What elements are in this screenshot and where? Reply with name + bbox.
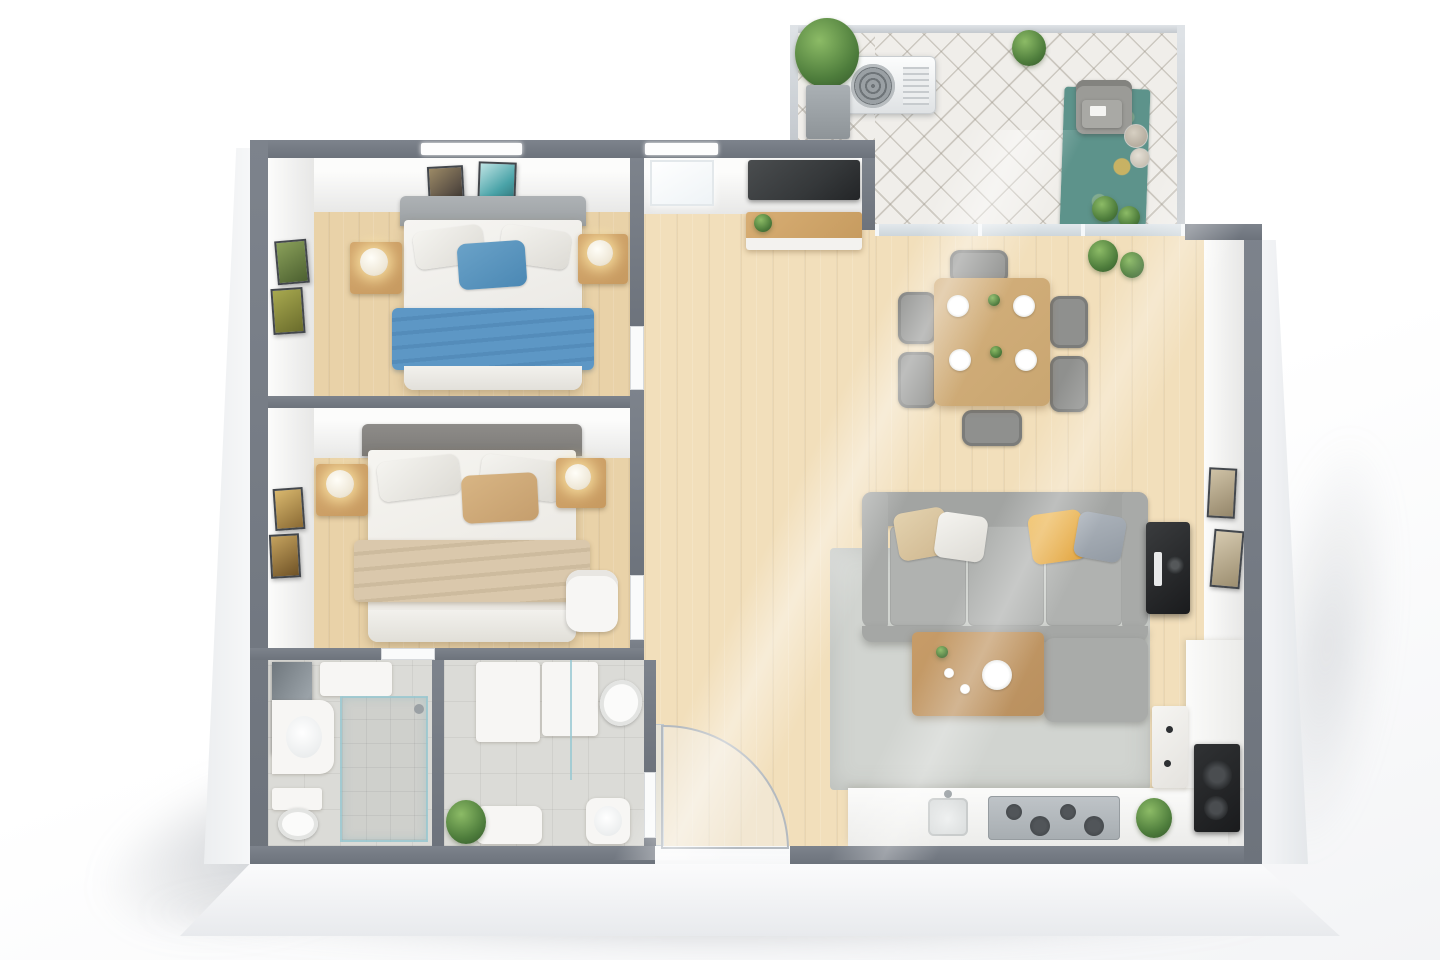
bedroom1-art-side-2 <box>270 287 305 335</box>
bath2-plant <box>446 800 486 844</box>
book-on-table <box>1090 106 1106 116</box>
ac-vents <box>903 67 929 105</box>
kitchen-knob-cabinet <box>1152 706 1188 788</box>
bath2-glass-screen <box>570 660 572 780</box>
sliding-door-mullion-1 <box>875 224 879 236</box>
bed1-foot-fold <box>404 366 582 390</box>
cooktop <box>988 796 1120 840</box>
balcony-plant-1 <box>1092 196 1118 222</box>
balcony-sliding-door <box>875 224 1185 236</box>
bed2-foot-fold <box>368 610 576 642</box>
bath1-shower <box>340 696 428 842</box>
bed1-throw-blanket <box>392 308 594 370</box>
burner-2 <box>1030 816 1050 836</box>
ac-fan-grille <box>851 64 895 108</box>
tv-screen <box>748 160 860 200</box>
wall-bedroom2-baths-a <box>250 648 381 660</box>
black-sink-unit <box>1194 744 1240 832</box>
burner-3 <box>1060 804 1076 820</box>
wall-between-bathrooms <box>432 660 444 846</box>
bath2-basin-bowl <box>594 806 622 836</box>
tv-sideboard-plant <box>754 214 772 232</box>
living-plant-1 <box>1088 240 1118 272</box>
balcony-top-plant <box>1012 30 1046 66</box>
wall-stub-balcony-right <box>1185 224 1262 240</box>
burner-1 <box>1006 804 1022 820</box>
sofa-pillow-white <box>933 511 989 564</box>
living-art-2 <box>1210 529 1245 589</box>
tall-plant-planter <box>806 85 850 139</box>
wall-bottom-right <box>790 846 1262 864</box>
coffee-table-plate <box>982 660 1012 690</box>
wall-bedrooms-hall-a <box>630 158 644 326</box>
sofa <box>862 492 1148 642</box>
sofa-pillow-gray <box>1072 510 1127 564</box>
tall-plant <box>795 18 859 88</box>
wall-between-bedrooms <box>268 396 630 408</box>
bath1-basin-bowl <box>286 716 322 758</box>
place-setting-1 <box>947 295 969 317</box>
dining-table <box>934 278 1050 406</box>
bath2-cabinet-1 <box>476 662 540 742</box>
black-side-unit <box>1146 522 1190 614</box>
sliding-door-mullion-2 <box>978 224 982 236</box>
bedroom2-bed <box>362 424 582 648</box>
bedroom2-art-side-2 <box>269 533 301 579</box>
hall-window <box>650 160 714 206</box>
table-vase-2 <box>990 346 1002 358</box>
hallway-window-sill <box>645 143 718 155</box>
living-dining-room <box>875 236 1244 846</box>
bedroom-1 <box>268 158 630 396</box>
bed2-throw-blanket <box>354 540 590 602</box>
place-setting-3 <box>949 349 971 371</box>
wall-bath2-hall-b <box>644 838 656 846</box>
bathroom-1 <box>268 660 432 846</box>
outer-wall-face-bottom <box>180 864 1340 936</box>
place-setting-4 <box>1015 349 1037 371</box>
planter-pot-small <box>1130 148 1150 168</box>
bathroom1-door <box>381 648 435 660</box>
kitchen-faucet <box>944 790 952 798</box>
black-sink-bowl-2 <box>1204 796 1228 820</box>
living-plant-2 <box>1120 252 1144 278</box>
coffee-table-glass-2 <box>960 684 970 694</box>
floor-plan-render <box>0 0 1440 960</box>
wall-bottom-left <box>250 846 655 864</box>
dining-chair-right-2 <box>1050 356 1088 412</box>
bedroom2-door <box>630 575 644 640</box>
bath2-washbasin <box>586 798 630 844</box>
bed2-accent-pillow <box>461 472 539 524</box>
wall-bath2-hall-a <box>644 660 656 772</box>
shower-head <box>414 704 424 714</box>
bedroom1-bed <box>400 196 586 392</box>
bedroom2-lamp-left <box>326 470 354 498</box>
kitchen-counter <box>848 788 1228 846</box>
bedroom1-art-side-1 <box>274 239 310 286</box>
sliding-door-mullion-3 <box>1081 224 1085 236</box>
kitchen-sink <box>928 798 968 836</box>
coffee-table-plant <box>936 646 948 658</box>
side-unit-slot <box>1154 552 1162 586</box>
coffee-table <box>912 632 1044 716</box>
bath2-low-cabinet <box>476 806 542 844</box>
sofa-arm-right <box>1122 492 1148 628</box>
place-setting-2 <box>1013 295 1035 317</box>
balcony-side-table <box>1082 100 1122 128</box>
bath1-shelf <box>320 662 392 696</box>
bedroom2-armchair <box>566 570 618 632</box>
dining-chair-left-2 <box>898 352 936 408</box>
sliding-door-mullion-4 <box>1181 224 1185 236</box>
table-vase-1 <box>988 294 1000 306</box>
wall-left <box>250 140 268 864</box>
wall-right <box>1244 224 1262 864</box>
bedroom1-lamp-left <box>360 248 388 276</box>
burner-4 <box>1084 816 1104 836</box>
kitchen-plant <box>1136 798 1172 838</box>
bedroom-2 <box>268 408 630 648</box>
black-sink-bowl-1 <box>1202 760 1232 790</box>
bed1-accent-pillow <box>456 240 527 291</box>
living-art-1 <box>1207 467 1238 518</box>
sofa-arm-left <box>862 492 888 628</box>
side-unit-speaker <box>1166 556 1184 574</box>
tv-sideboard <box>746 212 862 250</box>
cabinet-knob-2 <box>1164 760 1171 767</box>
tv-sideboard-drawers <box>746 238 862 250</box>
bathroom-2 <box>444 660 644 846</box>
bath1-washbasin <box>272 700 334 774</box>
dining-chair-bottom <box>962 410 1022 446</box>
bedroom1-lamp-right <box>587 240 613 266</box>
wall-tv-corner <box>862 158 875 230</box>
ottoman <box>1044 638 1148 722</box>
wall-bedrooms-hall-b <box>630 390 644 575</box>
dining-chair-left-1 <box>898 292 936 344</box>
bath1-toilet-tank <box>272 788 322 810</box>
bath2-toilet-bowl <box>595 676 647 731</box>
balcony-railing-right <box>1177 25 1185 232</box>
dining-chair-right-1 <box>1050 296 1088 348</box>
bath1-toilet-bowl <box>278 808 318 840</box>
bedroom1-window <box>421 143 522 155</box>
bedroom1-door <box>630 326 644 390</box>
wall-bedroom2-baths-b <box>435 648 644 660</box>
bedroom2-lamp-right <box>565 464 591 490</box>
outer-wall-face-left <box>204 148 250 864</box>
bedroom2-art-side-1 <box>273 487 306 531</box>
cabinet-knob-1 <box>1166 726 1173 733</box>
wall-top <box>250 140 875 158</box>
bathroom2-door <box>644 772 656 838</box>
planter-pot-large <box>1124 124 1148 148</box>
coffee-table-glass-1 <box>944 668 954 678</box>
